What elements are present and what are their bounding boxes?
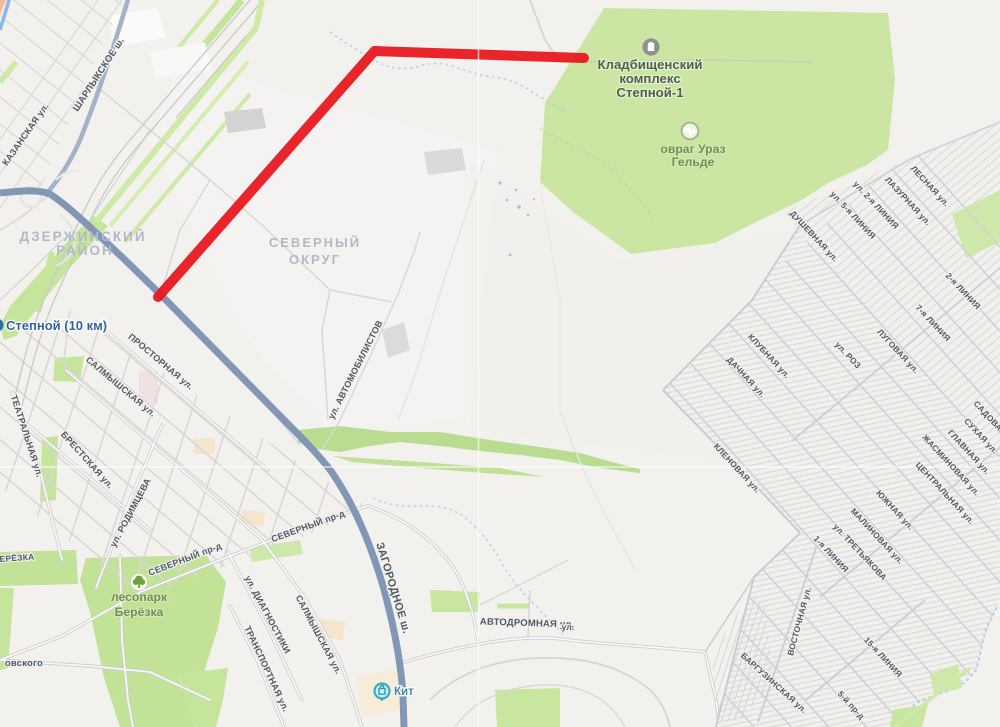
svg-text:комплекс: комплекс <box>619 71 680 86</box>
svg-text:СЕВЕРНЫЙ: СЕВЕРНЫЙ <box>269 235 361 250</box>
svg-text:лесопарк: лесопарк <box>111 590 168 604</box>
svg-text:Кладбищенский: Кладбищенский <box>598 57 703 72</box>
svg-text:Степной-1: Степной-1 <box>616 85 683 100</box>
svg-text:РАЙОН: РАЙОН <box>56 243 114 258</box>
svg-text:Степной (10 км): Степной (10 км) <box>6 318 107 333</box>
svg-text:Кит: Кит <box>394 686 414 698</box>
svg-text:ДЗЕРЖИНСКИЙ: ДЗЕРЖИНСКИЙ <box>19 229 146 244</box>
svg-text:овского: овского <box>5 658 43 669</box>
svg-text:Берёзка: Берёзка <box>115 605 164 619</box>
svg-text:Гельде: Гельде <box>672 155 715 169</box>
svg-text:ул.: ул. <box>562 622 575 632</box>
svg-text:ОКРУГ: ОКРУГ <box>289 252 341 267</box>
svg-text:овраг Ураз: овраг Ураз <box>660 142 725 156</box>
